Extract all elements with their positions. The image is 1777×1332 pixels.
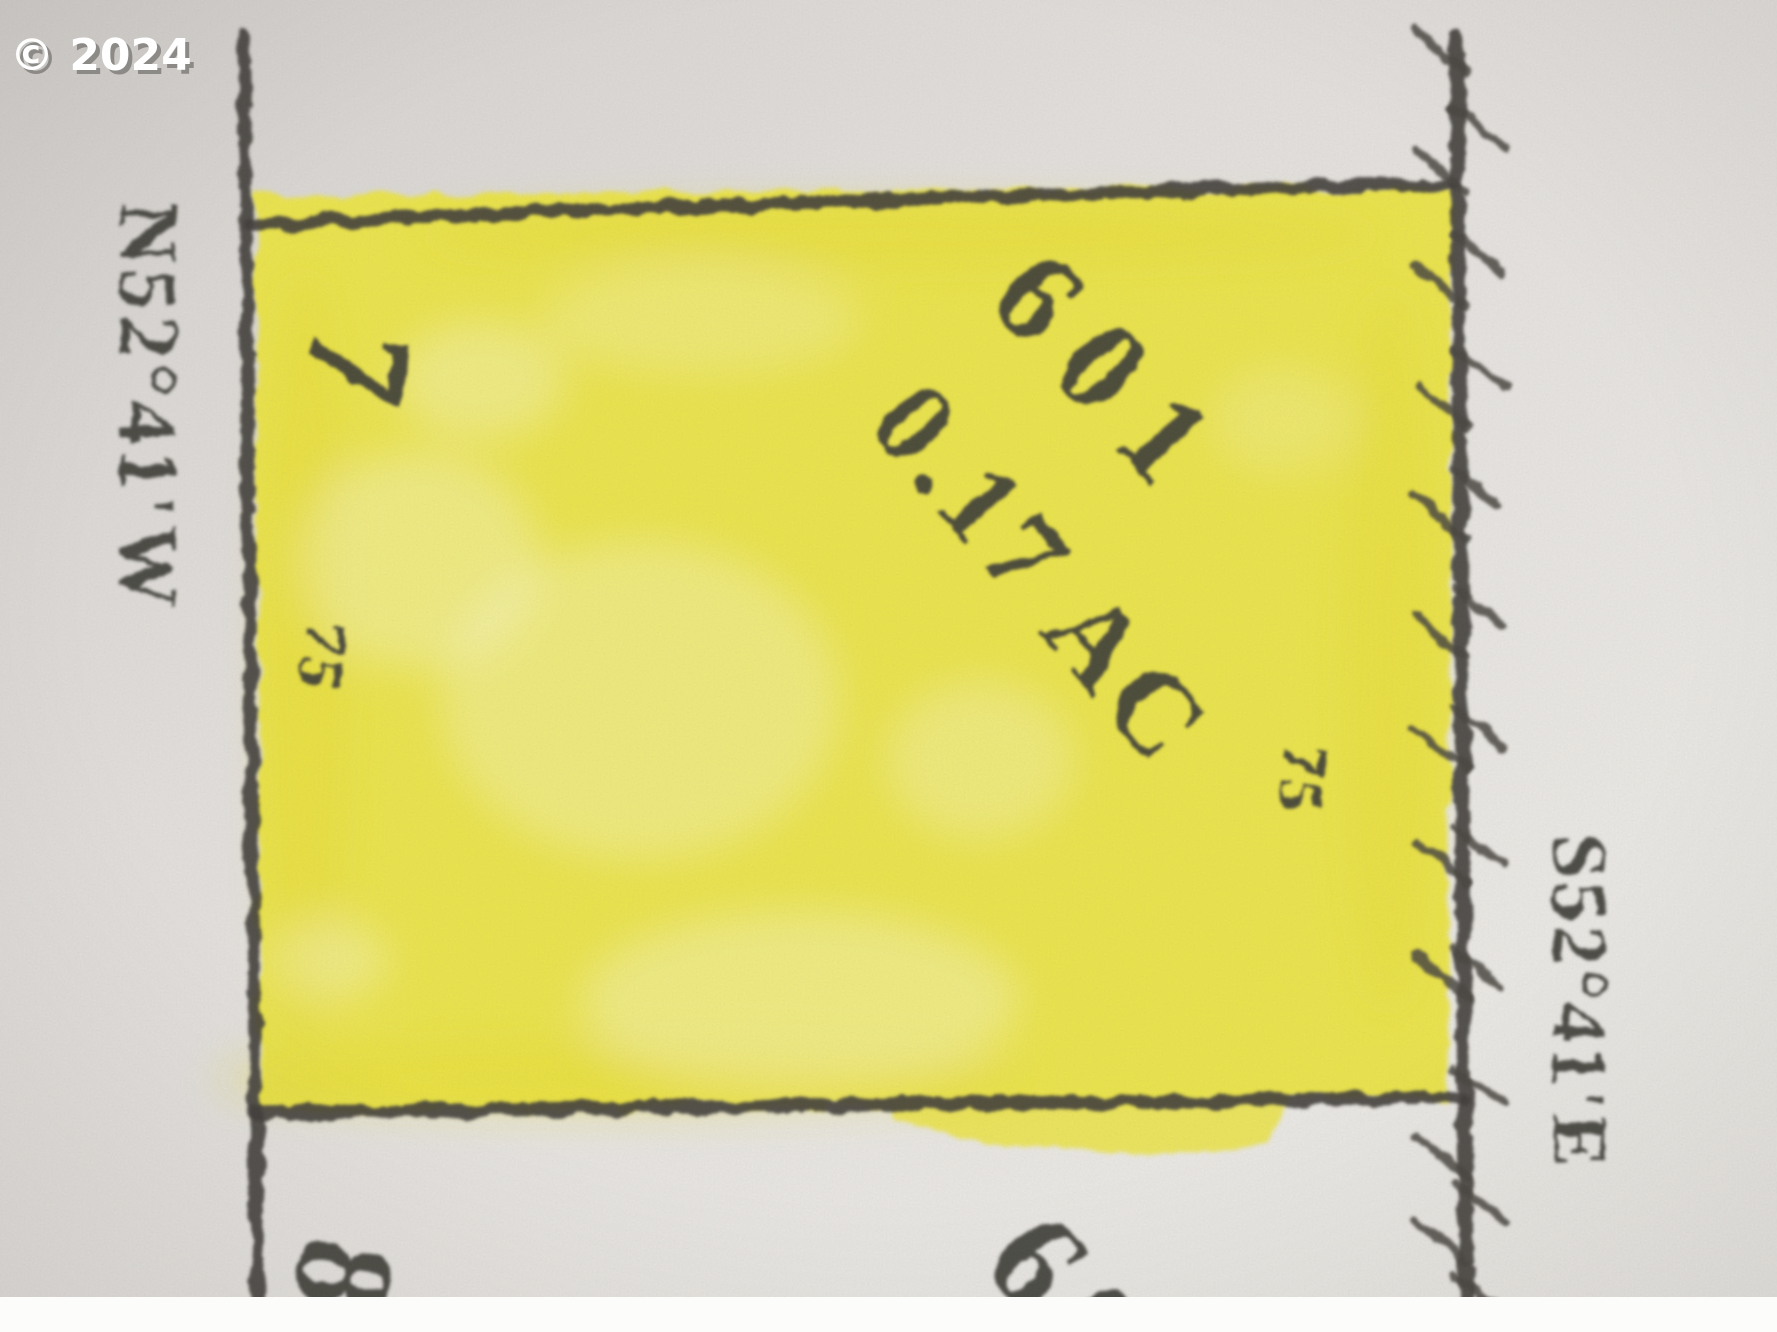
copyright-watermark: © 2024 © 2024 [10, 30, 196, 85]
photo-vignette [0, 0, 1777, 1332]
plat-map-canvas: 7 75 601 0.17 AC 75 N52°41'W S52°41'E 8 … [0, 0, 1777, 1332]
photo-bottom-white-strip [0, 1297, 1777, 1332]
watermark-text: © 2024 [10, 30, 192, 81]
plat-map-photo: 7 75 601 0.17 AC 75 N52°41'W S52°41'E 8 … [0, 0, 1777, 1332]
